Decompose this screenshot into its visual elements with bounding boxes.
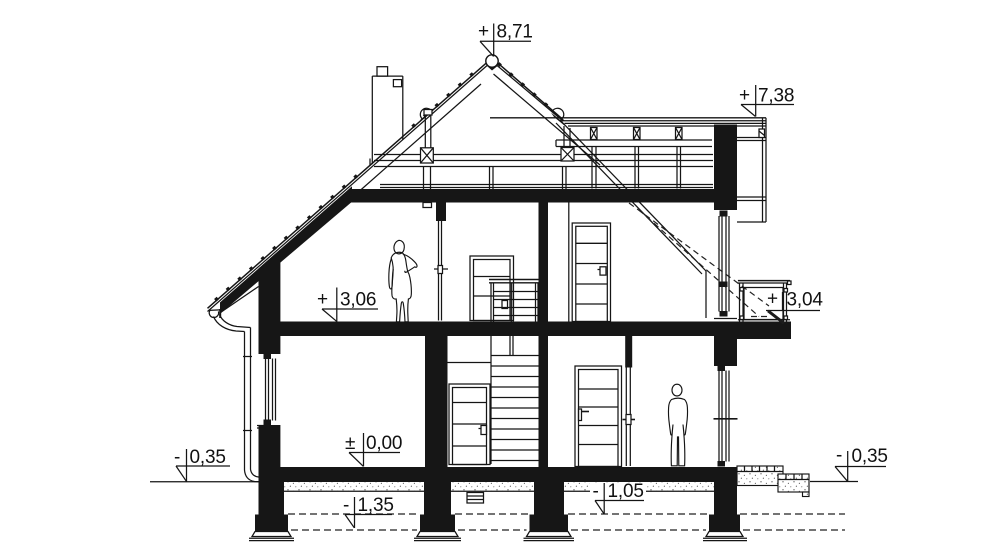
- svg-text:3,06: 3,06: [340, 290, 376, 311]
- svg-text:0,35: 0,35: [190, 447, 226, 468]
- svg-text:-: -: [343, 495, 349, 516]
- svg-text:-: -: [593, 481, 599, 502]
- svg-text:-: -: [836, 445, 842, 466]
- svg-text:1,35: 1,35: [358, 495, 394, 516]
- svg-text:+: +: [739, 85, 750, 106]
- svg-text:-: -: [174, 447, 180, 468]
- svg-text:+: +: [317, 289, 328, 310]
- svg-text:1,05: 1,05: [608, 481, 644, 502]
- svg-text:±: ±: [345, 433, 355, 454]
- svg-text:3,04: 3,04: [787, 290, 824, 311]
- svg-text:7,38: 7,38: [758, 86, 794, 107]
- svg-text:8,71: 8,71: [497, 22, 533, 43]
- svg-text:+: +: [478, 21, 489, 42]
- svg-text:+: +: [767, 289, 778, 310]
- svg-text:0,35: 0,35: [852, 446, 888, 467]
- svg-text:0,00: 0,00: [366, 433, 402, 454]
